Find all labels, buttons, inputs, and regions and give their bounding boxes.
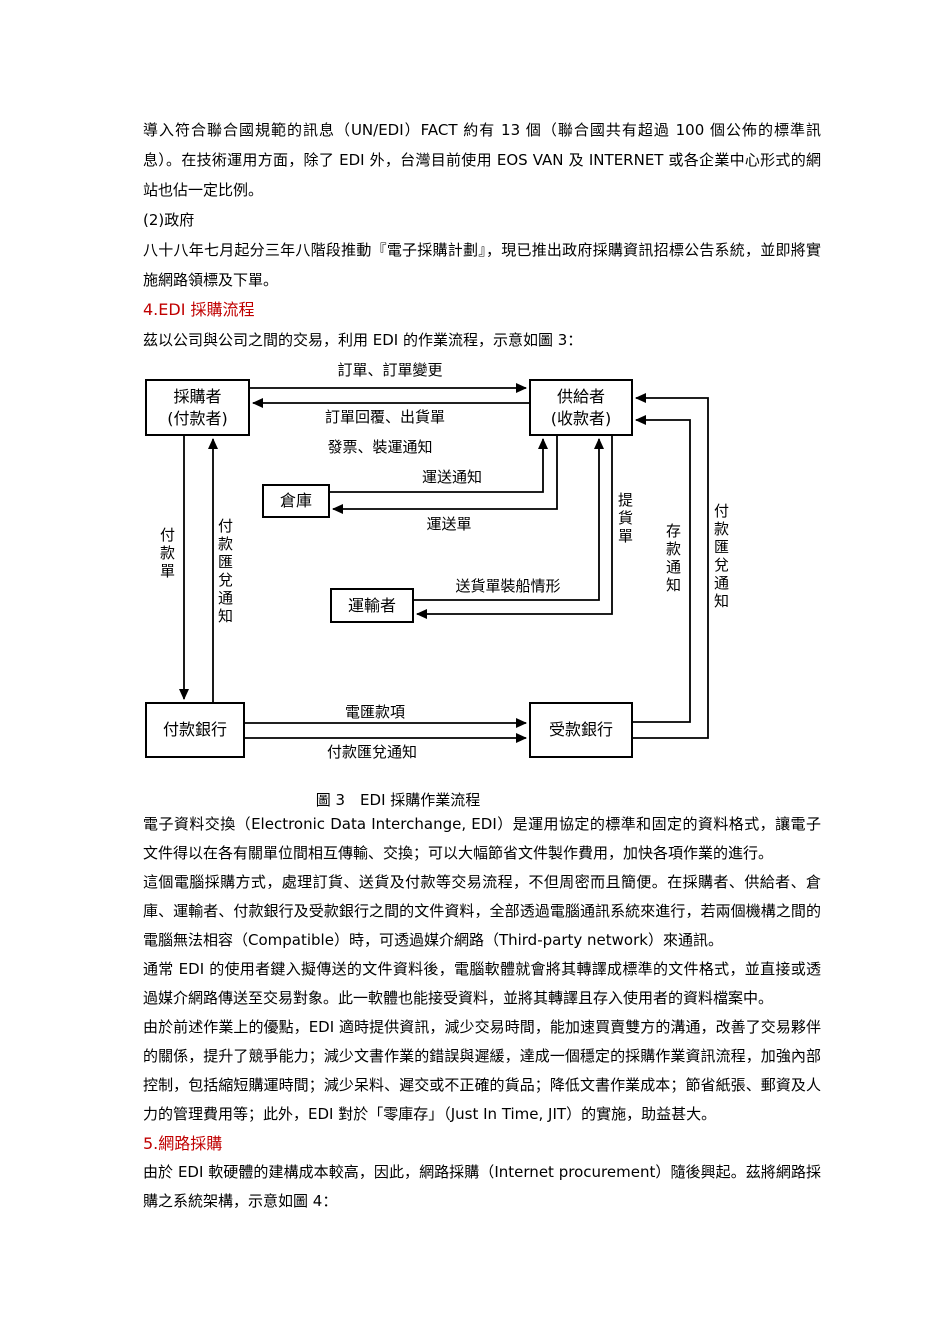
node-supplier-line2: (收款者) [551, 408, 612, 430]
node-receiving-bank-label: 受款銀行 [549, 719, 613, 741]
paragraph-figure3-intro: 茲以公司與公司之間的交易，利用 EDI 的作業流程，示意如圖 3： [143, 325, 821, 355]
flow-label-pickup-order: 提貨單 [616, 492, 633, 546]
figure3-caption: 圖 3 EDI 採購作業流程 [316, 789, 481, 810]
node-warehouse: 倉庫 [262, 484, 330, 518]
flow-label-payment-remittance-left: 付款匯兌通知 [216, 518, 233, 626]
node-buyer-line2: (付款者) [167, 408, 228, 430]
node-supplier: 供給者 (收款者) [529, 379, 633, 436]
upper-text-block: 導入符合聯合國規範的訊息（UN/EDI）FACT 約有 13 個（聯合國共有超過… [143, 115, 821, 355]
flow-label-delivery-shipping-status: 送貨單裝船情形 [455, 578, 560, 595]
section-heading-4-edi-process: 4.EDI 採購流程 [143, 295, 821, 325]
node-supplier-line1: 供給者 [557, 386, 605, 408]
section-heading-5-internet-procurement: 5.網路採購 [143, 1129, 821, 1158]
node-transporter: 運輸者 [330, 588, 414, 623]
flow-label-order: 訂單、訂單變更 [337, 362, 442, 379]
paragraph-edi-software: 通常 EDI 的使用者鍵入擬傳送的文件資料後，電腦軟體就會將其轉譯成標準的文件格… [143, 955, 821, 1013]
edi-flow-diagram: 採購者 (付款者) 供給者 (收款者) 倉庫 運輸者 付款銀行 受款銀行 訂單、… [0, 355, 950, 785]
node-receiving-bank: 受款銀行 [529, 702, 633, 758]
flow-arrows [0, 355, 950, 785]
node-paying-bank: 付款銀行 [145, 702, 245, 758]
node-buyer-line1: 採購者 [173, 386, 221, 408]
flow-label-transport-notice: 運送通知 [422, 469, 482, 486]
paragraph-government-label: (2)政府 [143, 205, 821, 235]
flow-label-payment-remittance-right: 付款匯兌通知 [712, 503, 729, 611]
lower-text-block: 電子資料交換（Electronic Data Interchange, EDI）… [143, 810, 821, 1216]
paragraph-edi-definition: 電子資料交換（Electronic Data Interchange, EDI）… [143, 810, 821, 868]
paragraph-figure4-intro: 由於 EDI 軟硬體的建構成本較高，因此，網路採購（Internet procu… [143, 1158, 821, 1216]
node-warehouse-label: 倉庫 [280, 490, 312, 512]
flow-label-wire-transfer: 電匯款項 [345, 704, 405, 721]
flow-label-payment-remittance-bottom: 付款匯兌通知 [327, 744, 417, 761]
flow-label-payment-order: 付款單 [158, 527, 175, 581]
flow-label-invoice-shipping: 發票、裝運通知 [327, 439, 432, 456]
node-transporter-label: 運輸者 [348, 595, 396, 617]
node-buyer: 採購者 (付款者) [145, 379, 250, 436]
flow-label-transport-order: 運送單 [426, 516, 471, 533]
paragraph-edi-process: 這個電腦採購方式，處理訂貨、送貨及付款等交易流程，不但周密而且簡便。在採購者、供… [143, 868, 821, 955]
paragraph-unedifact: 導入符合聯合國規範的訊息（UN/EDI）FACT 約有 13 個（聯合國共有超過… [143, 115, 821, 205]
node-paying-bank-label: 付款銀行 [163, 719, 227, 741]
paragraph-edi-benefits: 由於前述作業上的優點，EDI 適時提供資訊，減少交易時間，能加速買賣雙方的溝通，… [143, 1013, 821, 1129]
flow-label-order-reply: 訂單回覆、出貨單 [325, 409, 445, 426]
flow-label-deposit-notice: 存款通知 [664, 523, 681, 595]
paragraph-government-plan: 八十八年七月起分三年八階段推動『電子採購計劃』，現已推出政府採購資訊招標公告系統… [143, 235, 821, 295]
